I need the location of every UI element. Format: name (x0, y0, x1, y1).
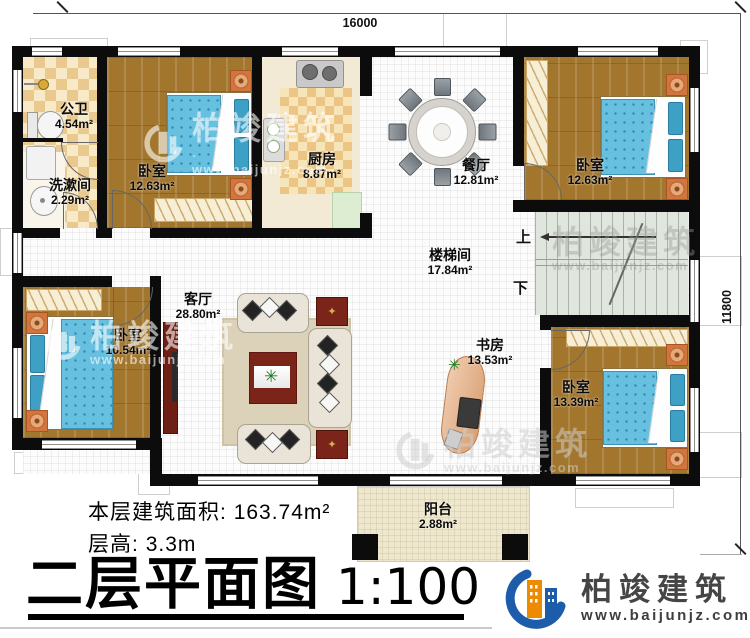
window (576, 476, 670, 485)
wall (360, 213, 372, 238)
headboard-cushion (234, 99, 249, 133)
dimension-line-right (740, 13, 741, 555)
wall (97, 46, 107, 238)
bed (600, 96, 686, 178)
room-label-balcony: 阳台 2.88m² (419, 502, 457, 531)
room-label-bedroom4: 卧室 13.39m² (554, 380, 599, 409)
room-area: 13.53m² (468, 354, 513, 367)
window (118, 47, 180, 56)
room-area: 13.39m² (554, 396, 599, 409)
wall (540, 368, 551, 474)
stair-arrow-head (540, 233, 549, 241)
wall (513, 200, 700, 212)
plant-icon: ✳ (448, 358, 461, 373)
divider-rule (0, 627, 492, 629)
nightstand (666, 178, 688, 200)
computer-monitor-icon (456, 397, 481, 429)
side-table: ✦ (316, 430, 348, 459)
wardrobe (154, 198, 254, 222)
floor-area-label: 本层建筑面积: (88, 501, 227, 524)
room-name: 卧室 (568, 158, 613, 174)
window (13, 233, 22, 273)
room-area: 12.63m² (130, 180, 175, 193)
room-name: 洗漱间 (49, 178, 91, 194)
room-area: 2.88m² (419, 518, 457, 531)
bed (166, 92, 252, 176)
headboard-cushion (670, 374, 685, 406)
room-name: 客厅 (176, 292, 221, 308)
room-area: 12.63m² (568, 174, 613, 187)
shower-head-icon (38, 79, 49, 90)
room-name: 卧室 (554, 380, 599, 396)
brand-logo-icon (497, 566, 571, 632)
room-label-bedroom3: 卧室 10.54m² (106, 328, 151, 357)
stair-landing-line (535, 265, 688, 266)
room-label-washroom: 洗漱间 2.29m² (49, 178, 91, 207)
headboard-cushion (234, 137, 249, 171)
headboard-cushion (30, 335, 45, 373)
room-name: 公卫 (55, 102, 93, 118)
wall (23, 228, 60, 238)
plant-icon: ✳ (264, 368, 278, 385)
wall (540, 315, 700, 327)
chair-icon (434, 168, 451, 186)
window (13, 348, 22, 418)
room-area: 10.54m² (106, 344, 151, 357)
wall (513, 46, 524, 166)
room-area: 8.87m² (303, 168, 341, 181)
window (32, 47, 62, 56)
extension-line (700, 554, 742, 555)
room-label-living: 客厅 28.80m² (176, 292, 221, 321)
tv-icon (172, 352, 178, 402)
floor-area-line: 本层建筑面积: 163.74m² (88, 496, 330, 526)
floor-plan-page: ✳ ✦ ✦ ✳ 柏竣建筑 . www.baijunjz.com 柏竣建筑 www… (0, 0, 750, 638)
stair-up-label: 上 (516, 226, 531, 247)
room-label-dining: 餐厅 12.81m² (454, 158, 499, 187)
washing-machine-icon (26, 146, 56, 180)
wall (252, 46, 262, 238)
wardrobe (26, 289, 102, 311)
room-label-study: 书房 13.53m² (468, 338, 513, 367)
wall (360, 46, 372, 96)
bed (602, 368, 688, 448)
side-table: ✦ (316, 297, 348, 326)
sink-drain (40, 198, 45, 203)
room-label-kitchen: 厨房 8.87m² (303, 152, 341, 181)
wall (540, 315, 551, 330)
headboard-cushion (668, 139, 683, 172)
brand-url: www.baijunjz.com (581, 607, 750, 624)
window-sill (694, 256, 742, 326)
window (42, 440, 136, 449)
window (395, 47, 500, 56)
nightstand (26, 410, 48, 432)
room-name: 卧室 (106, 328, 151, 344)
room-label-bedroom1: 卧室 12.63m² (130, 164, 175, 193)
brand-block: 柏竣建筑 www.baijunjz.com (497, 566, 750, 632)
window-sill (575, 488, 674, 508)
room-area: 28.80m² (176, 308, 221, 321)
window (578, 47, 658, 56)
chair-icon (434, 78, 451, 96)
floor-area-value: 163.74m² (234, 501, 331, 524)
room-area: 12.81m² (454, 174, 499, 187)
room-area: 4.54m² (55, 118, 93, 131)
wall (150, 276, 161, 438)
room-label-bedroom2: 卧室 12.63m² (568, 158, 613, 187)
chair-icon (389, 124, 407, 141)
wall (96, 228, 112, 238)
sink-basin (267, 123, 280, 136)
nightstand (230, 70, 252, 92)
burner-icon (302, 64, 318, 80)
dimension-line-top (33, 13, 741, 14)
page-title: 二层平面图 (26, 556, 321, 613)
stair-landing-line (535, 259, 688, 260)
window-sill (698, 432, 742, 478)
drawing-scale: 1:100 (336, 562, 480, 612)
dimension-value-top: 16000 (330, 16, 390, 30)
room-name: 楼梯间 (428, 248, 473, 264)
wardrobe (526, 60, 548, 166)
window (198, 476, 318, 485)
balcony-sliding-door (390, 476, 502, 485)
balcony-pillar (502, 534, 528, 560)
title-underline (28, 614, 464, 620)
dimension-tick (56, 1, 68, 13)
headboard-cushion (670, 410, 685, 442)
nightstand (666, 448, 688, 470)
window (690, 260, 699, 322)
room-name: 阳台 (419, 502, 457, 518)
room-area: 17.84m² (428, 264, 473, 277)
stair-direction-line (548, 236, 656, 238)
nightstand (666, 74, 688, 96)
chair-icon (479, 124, 497, 141)
room-name: 书房 (468, 338, 513, 354)
window (282, 47, 338, 56)
dimension-value-right: 11800 (720, 277, 734, 337)
room-label-bathroom: 公卫 4.54m² (55, 102, 93, 131)
dining-table-center (433, 123, 451, 141)
balcony-pillar (352, 534, 378, 560)
wall (23, 138, 63, 142)
room-name: 厨房 (303, 152, 341, 168)
stair-down-label: 下 (513, 277, 528, 298)
nightstand (26, 312, 48, 334)
window (690, 388, 699, 452)
wall (12, 276, 112, 287)
headboard-cushion (668, 102, 683, 135)
nightstand (230, 178, 252, 200)
window (690, 88, 699, 152)
room-name: 餐厅 (454, 158, 499, 174)
kitchen-counter (332, 192, 362, 230)
room-name: 卧室 (130, 164, 175, 180)
brand-name: 柏竣建筑 (581, 574, 750, 607)
room-area: 2.29m² (49, 194, 91, 207)
window (13, 70, 22, 112)
sink-basin (267, 140, 280, 153)
burner-icon (322, 66, 337, 81)
room-label-stairhall: 楼梯间 17.84m² (428, 248, 473, 277)
dimension-tick (734, 1, 746, 13)
nightstand (666, 344, 688, 366)
